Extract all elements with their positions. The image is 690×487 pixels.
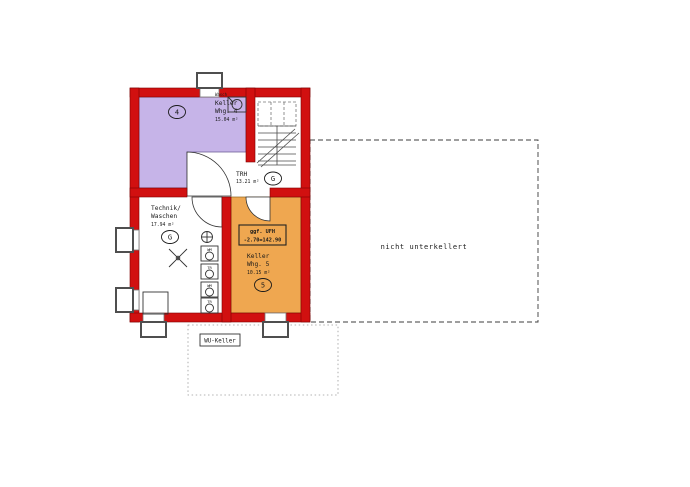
light-well-left-lower	[116, 288, 133, 312]
wall-whg4-technik	[130, 188, 187, 197]
window-bottom-right	[265, 313, 286, 322]
room-area: 17.94 m²	[151, 222, 174, 228]
appliance-symbol: TR	[201, 298, 218, 313]
appliance-label: TR	[207, 299, 212, 304]
light-well-top	[197, 73, 222, 88]
unit-number: 4	[175, 109, 179, 117]
wall-technik-whg5	[222, 197, 231, 322]
label-technik: Technik/ Waschen 17.94 m² G	[151, 205, 181, 244]
room-area: 15.04 m²	[215, 117, 238, 123]
appliance-label: TR	[207, 265, 212, 270]
staircase	[257, 102, 299, 167]
floorplan-basement: nicht unterkellert	[0, 0, 690, 487]
room-name: Whg. 4	[215, 108, 238, 115]
technik-symbols: WM TR WM TR	[143, 232, 218, 315]
boiler-icon	[202, 232, 213, 243]
stair-break-line	[257, 129, 295, 163]
equipment-box	[143, 292, 168, 314]
unit-letter: G	[271, 175, 275, 183]
light-well-bottom-right	[263, 322, 288, 337]
room-name: Technik/	[151, 205, 181, 212]
nicht-unterkellert-label: nicht unterkellert	[381, 243, 468, 251]
appliance-label: WM	[207, 247, 212, 252]
label-trh: TRH 13.21 m² G	[236, 171, 282, 185]
appliance-label: WM	[207, 283, 212, 288]
room-area: 10.15 m²	[247, 270, 270, 276]
room-area: 13.21 m²	[236, 179, 259, 185]
stair-upper-flight-dashed	[258, 102, 296, 126]
room-name: Waschen	[151, 213, 177, 220]
level-note-line1: ggf. UFH	[250, 229, 275, 235]
unit-number: 5	[261, 282, 265, 290]
nicht-unterkellert-area: nicht unterkellert	[310, 140, 538, 322]
room-name: TRH	[236, 171, 247, 178]
door-swing-technik	[192, 197, 222, 227]
wu-keller-label: WU-Keller	[204, 339, 236, 345]
appliance-symbol: TR	[201, 264, 218, 279]
room-name: Keller	[215, 100, 238, 107]
wall-left	[130, 88, 139, 322]
washing-machine-label: Wasch	[215, 92, 228, 97]
wu-keller-tag: WU-Keller	[200, 334, 240, 346]
stair-break-line	[261, 133, 299, 167]
room-name: Keller	[247, 253, 270, 260]
nicht-unterkellert-outline	[310, 140, 538, 322]
appliance-symbol: WM	[201, 282, 218, 297]
light-well-bottom-left	[141, 322, 166, 337]
unit-letter: G	[168, 234, 172, 242]
wall-right	[301, 88, 310, 322]
level-note-line2: -2.70=142.90	[244, 238, 281, 244]
floor-drain-icon	[169, 249, 187, 267]
wall-stairwell	[246, 88, 255, 162]
light-well-left-upper	[116, 228, 133, 252]
door-swing-whg4	[187, 152, 231, 196]
wall-trh-whg5	[270, 188, 310, 197]
room-name: Whg. 5	[247, 261, 270, 268]
appliance-symbol: WM	[201, 246, 218, 261]
